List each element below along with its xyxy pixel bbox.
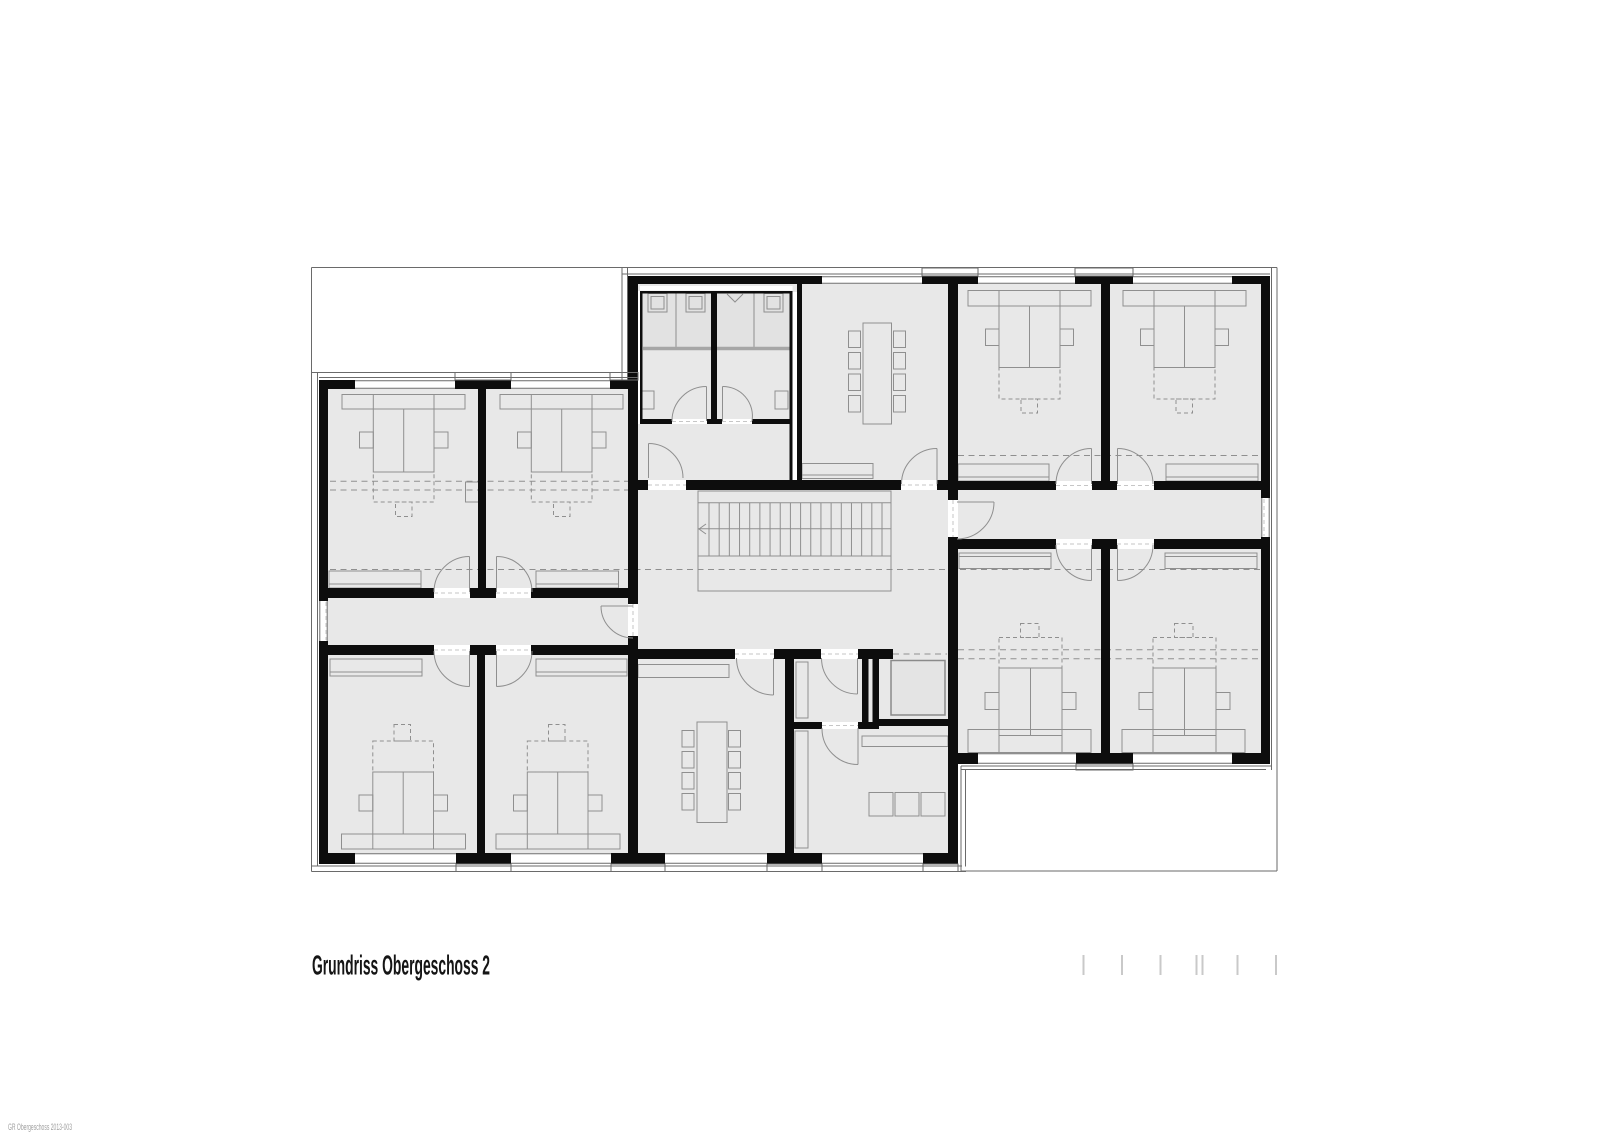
svg-text:GR Obergeschoss 2013-003: GR Obergeschoss 2013-003 (8, 1122, 72, 1132)
svg-text:Grundriss Obergeschoss 2: Grundriss Obergeschoss 2 (312, 950, 490, 981)
